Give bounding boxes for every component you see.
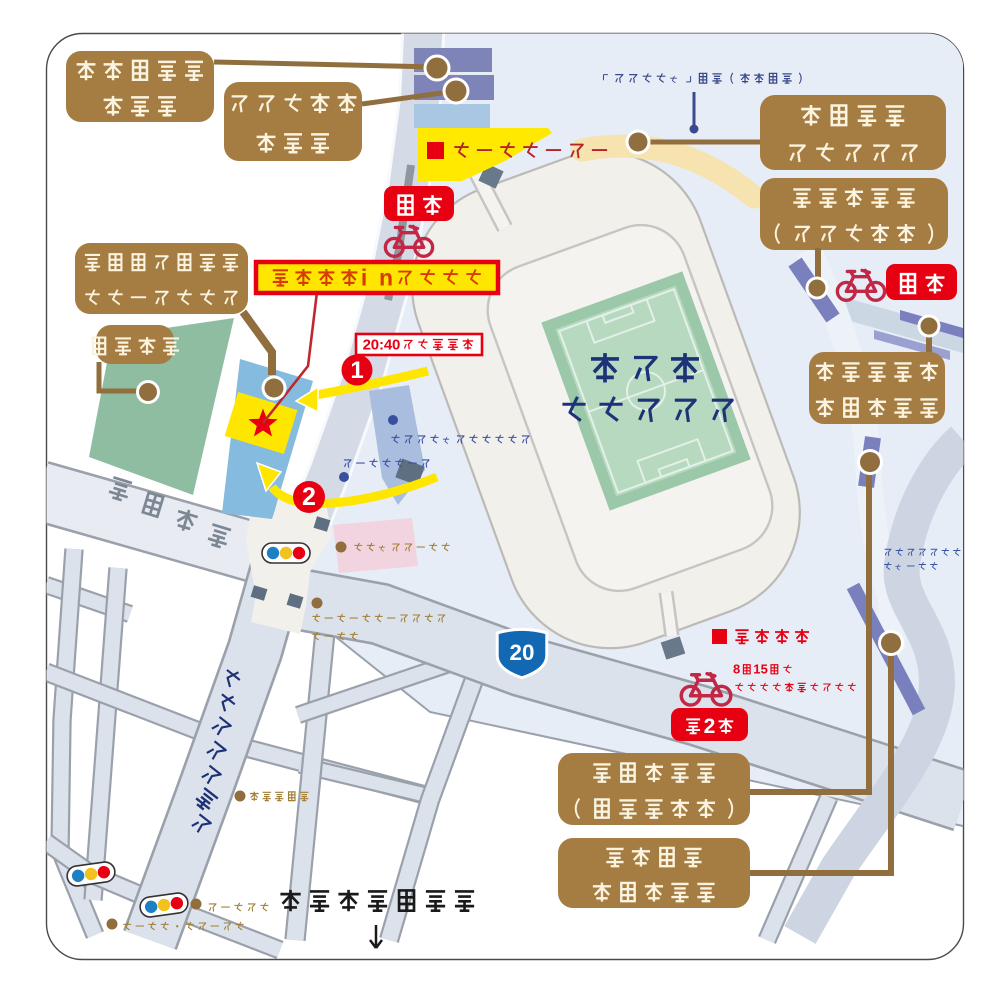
svg-text:2: 2 (302, 483, 316, 511)
svg-text:8: 8 (733, 662, 740, 677)
svg-text:1: 1 (350, 357, 363, 384)
svg-text:2: 2 (704, 715, 716, 738)
svg-text:20: 20 (510, 640, 535, 665)
svg-text:15: 15 (753, 662, 768, 677)
svg-text:20:40: 20:40 (363, 336, 401, 353)
